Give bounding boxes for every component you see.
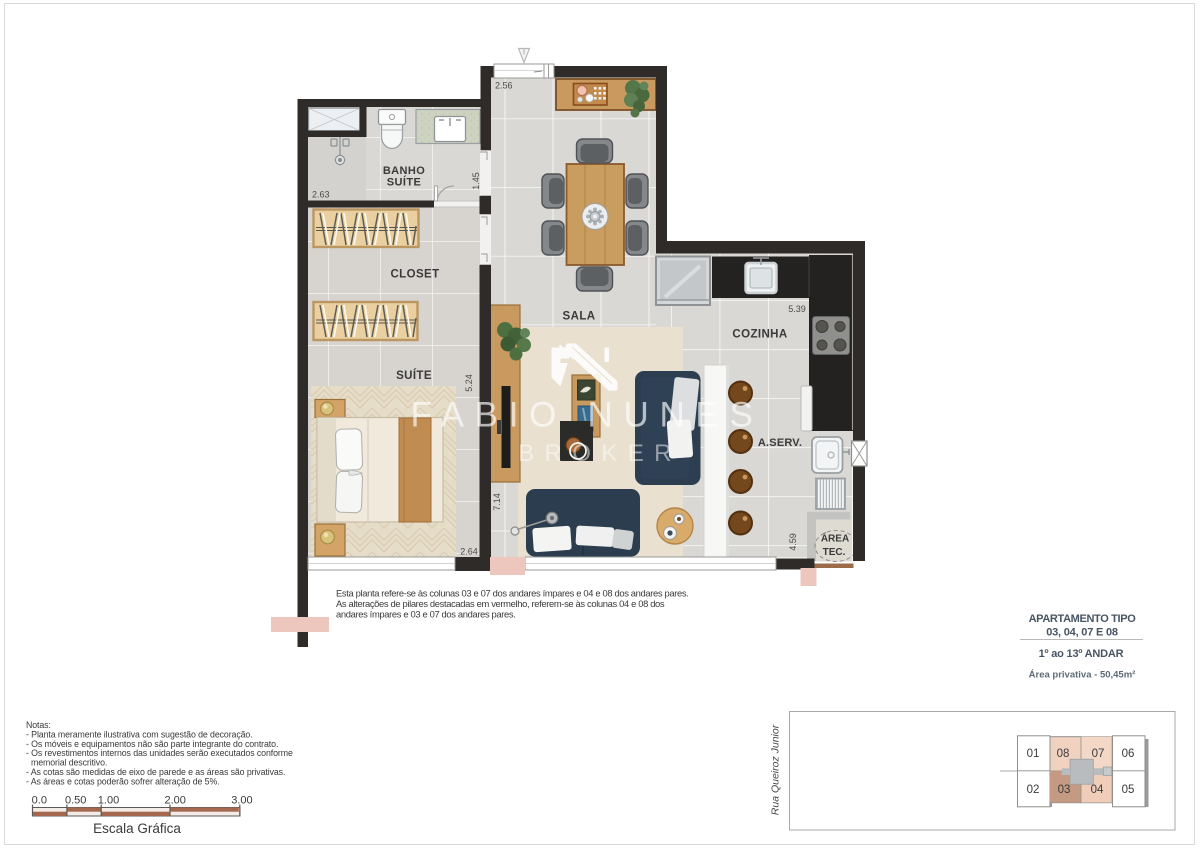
svg-text:APARTAMENTO TIPO: APARTAMENTO TIPO (1029, 613, 1137, 625)
svg-text:05: 05 (1122, 784, 1135, 796)
svg-text:SUÍTE: SUÍTE (387, 176, 421, 189)
svg-text:A.SERV.: A.SERV. (758, 437, 802, 449)
svg-text:BROKER: BROKER (518, 440, 682, 467)
svg-text:BANHO: BANHO (383, 165, 425, 177)
svg-text:3.00: 3.00 (231, 795, 252, 807)
svg-text:5.24: 5.24 (464, 374, 474, 392)
svg-text:06: 06 (1122, 748, 1135, 760)
svg-text:Escala Gráfica: Escala Gráfica (93, 821, 181, 836)
svg-text:Área privativa - 50,45m²: Área privativa - 50,45m² (1029, 670, 1136, 681)
svg-text:FABIO NUNES: FABIO NUNES (410, 396, 763, 435)
svg-text:7.14: 7.14 (492, 493, 502, 511)
svg-text:1º ao 13º ANDAR: 1º ao 13º ANDAR (1039, 648, 1124, 660)
svg-text:03: 03 (1058, 784, 1071, 796)
svg-text:1.45: 1.45 (471, 172, 481, 190)
svg-text:TEC.: TEC. (823, 547, 846, 558)
svg-text:COZINHA: COZINHA (732, 329, 787, 341)
svg-text:CLOSET: CLOSET (390, 269, 439, 281)
svg-text:As alterações de pilares desta: As alterações de pilares destacadas em v… (336, 598, 665, 609)
svg-text:SUÍTE: SUÍTE (396, 369, 432, 382)
svg-text:Rua Queiroz Junior: Rua Queiroz Junior (770, 724, 782, 815)
svg-text:08: 08 (1057, 748, 1070, 760)
svg-text:04: 04 (1091, 784, 1104, 796)
svg-text:02: 02 (1027, 784, 1040, 796)
svg-text:4.59: 4.59 (788, 533, 798, 551)
svg-text:07: 07 (1092, 748, 1105, 760)
svg-text:2.00: 2.00 (164, 795, 185, 807)
svg-text:- As áreas e cotas poderão sof: - As áreas e cotas poderão sofrer altera… (26, 776, 220, 786)
svg-text:Esta planta refere-se às colun: Esta planta refere-se às colunas 03 e 07… (336, 588, 688, 599)
svg-text:0.0: 0.0 (32, 795, 47, 807)
svg-text:5.39: 5.39 (788, 304, 806, 314)
svg-text:2.56: 2.56 (495, 81, 513, 91)
svg-text:ÁREA: ÁREA (821, 532, 849, 545)
svg-text:2.63: 2.63 (312, 190, 330, 200)
svg-text:SALA: SALA (563, 311, 596, 323)
svg-text:01: 01 (1027, 748, 1040, 760)
svg-text:0.50: 0.50 (65, 795, 86, 807)
svg-text:03, 04, 07 E 08: 03, 04, 07 E 08 (1046, 627, 1118, 639)
svg-text:2.64: 2.64 (460, 547, 478, 557)
svg-text:andares ímpares e 03 e 07 dos: andares ímpares e 03 e 07 dos andares pa… (336, 609, 516, 620)
svg-text:1.00: 1.00 (98, 795, 119, 807)
